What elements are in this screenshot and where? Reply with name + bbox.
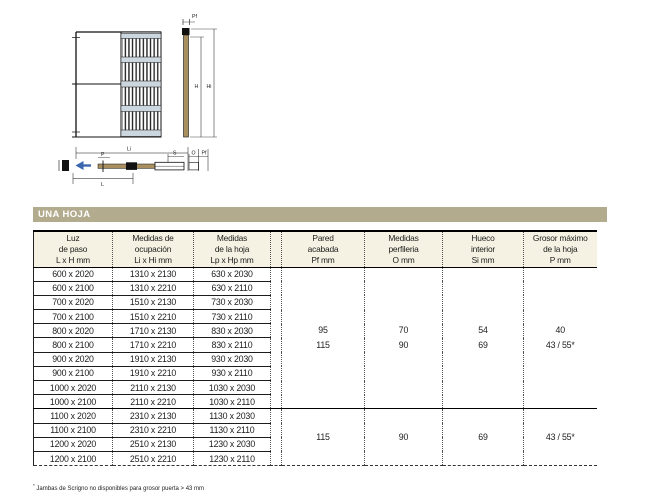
dimension-cell: 630 x 2030 <box>194 267 271 281</box>
dimension-cell: 830 x 2030 <box>194 324 271 338</box>
cassette <box>121 32 161 137</box>
spacer-cell <box>271 409 282 466</box>
dimension-cell: 2310 x 2130 <box>113 409 194 423</box>
dim-label-pf-top: Pf <box>192 14 197 20</box>
dimension-cell: 1200 x 2100 <box>34 451 113 465</box>
dimension-cell: 900 x 2100 <box>34 366 113 380</box>
dimension-table: Luzde pasoL x H mmMedidas deocupaciónLi … <box>33 230 597 466</box>
column-header-ocupacion: Medidas deocupaciónLi x Hi mm <box>113 231 194 267</box>
dim-label-l: L <box>101 182 104 188</box>
column-header-grosor: Grosor máximode la hojaP mm <box>524 231 597 267</box>
column-header-spacer <box>271 231 282 267</box>
dimension-cell: 600 x 2020 <box>34 267 113 281</box>
footnote: * Jambas de Scrigno no disponibles para … <box>33 483 204 492</box>
dimension-cell: 2510 x 2210 <box>113 451 194 465</box>
dimension-cell: 1910 x 2130 <box>113 352 194 366</box>
merged-value-cell-perfileria: 90 <box>365 409 443 466</box>
dim-label-pf: Pf <box>202 151 207 157</box>
catalog-page: Pf H Hi Li P <box>0 0 649 502</box>
merged-value-cell-hueco: 69 <box>443 409 524 466</box>
dimension-cell: 2510 x 2130 <box>113 437 194 451</box>
merged-value-cell-hueco: 5469 <box>443 267 524 409</box>
table-row: 1100 x 20202310 x 21301130 x 20301159069… <box>34 409 597 423</box>
column-header-perfileria: MedidasperfileriaO mm <box>365 231 443 267</box>
dimension-cell: 2310 x 2210 <box>113 423 194 437</box>
dimension-cell: 1030 x 2110 <box>194 395 271 409</box>
dimension-cell: 1200 x 2020 <box>34 437 113 451</box>
technical-drawing: Pf H Hi Li P <box>48 4 226 196</box>
column-header-luz: Luzde pasoL x H mm <box>34 231 113 267</box>
dimension-cell: 1230 x 2110 <box>194 451 271 465</box>
plan-view: Li P S O Pf <box>59 147 208 189</box>
table-row: 600 x 20201310 x 2130630 x 2030951157090… <box>34 267 597 281</box>
merged-value-cell-pared: 95115 <box>282 267 365 409</box>
dimension-cell: 2110 x 2130 <box>113 381 194 395</box>
dimension-cell: 900 x 2020 <box>34 352 113 366</box>
dim-label-hi: Hi <box>207 84 212 90</box>
dimension-cell: 1130 x 2030 <box>194 409 271 423</box>
dimension-cell: 1100 x 2100 <box>34 423 113 437</box>
dimension-cell: 1710 x 2210 <box>113 338 194 352</box>
dim-label-o: O <box>192 151 196 157</box>
dimension-cell: 930 x 2110 <box>194 366 271 380</box>
merged-value-cell-perfileria: 7090 <box>365 267 443 409</box>
dimension-cell: 700 x 2100 <box>34 310 113 324</box>
dimension-cell: 1310 x 2210 <box>113 281 194 295</box>
dimension-cell: 1310 x 2130 <box>113 267 194 281</box>
dimension-cell: 1230 x 2030 <box>194 437 271 451</box>
column-header-pared: ParedacabadaPf mm <box>282 231 365 267</box>
dimension-cell: 2110 x 2210 <box>113 395 194 409</box>
column-header-hueco: HuecointeriorSi mm <box>443 231 524 267</box>
dimension-cell: 930 x 2030 <box>194 352 271 366</box>
front-view <box>72 32 161 137</box>
dimension-cell: 730 x 2030 <box>194 295 271 309</box>
merged-value-cell-grosor: 4043 / 55* <box>524 267 597 409</box>
section-title: UNA HOJA <box>38 209 90 220</box>
dimension-cell: 1030 x 2030 <box>194 381 271 395</box>
dimension-cell: 730 x 2110 <box>194 310 271 324</box>
spacer-cell <box>271 267 282 409</box>
dim-label-h: H <box>195 84 199 90</box>
dimension-cell: 1130 x 2110 <box>194 423 271 437</box>
dimension-cell: 630 x 2110 <box>194 281 271 295</box>
dimension-cell: 1510 x 2210 <box>113 310 194 324</box>
dimension-cell: 600 x 2100 <box>34 281 113 295</box>
dimension-cell: 700 x 2020 <box>34 295 113 309</box>
column-header-hoja: Medidasde la hojaLp x Hp mm <box>194 231 271 267</box>
section-header-bar: UNA HOJA <box>33 207 607 222</box>
dim-label-p: P <box>101 152 105 158</box>
dimension-cell: 1710 x 2130 <box>113 324 194 338</box>
dimension-cell: 800 x 2020 <box>34 324 113 338</box>
side-view: Pf H Hi <box>182 14 217 137</box>
dim-label-s: S <box>173 151 177 157</box>
dimension-cell: 1100 x 2020 <box>34 409 113 423</box>
dimension-cell: 1910 x 2210 <box>113 366 194 380</box>
merged-value-cell-pared: 115 <box>282 409 365 466</box>
end-jamb <box>62 160 69 171</box>
table-header-row: Luzde pasoL x H mmMedidas deocupaciónLi … <box>34 231 597 267</box>
dimension-cell: 830 x 2110 <box>194 338 271 352</box>
footnote-text: Jambas de Scrigno no disponibles para gr… <box>35 486 204 492</box>
dim-label-li: Li <box>127 147 131 153</box>
dimension-cell: 800 x 2100 <box>34 338 113 352</box>
slide-direction-arrow-icon <box>76 161 92 170</box>
dimension-cell: 1000 x 2020 <box>34 381 113 395</box>
dimension-cell: 1510 x 2130 <box>113 295 194 309</box>
merged-value-cell-grosor: 43 / 55* <box>524 409 597 466</box>
dimension-cell: 1000 x 2100 <box>34 395 113 409</box>
